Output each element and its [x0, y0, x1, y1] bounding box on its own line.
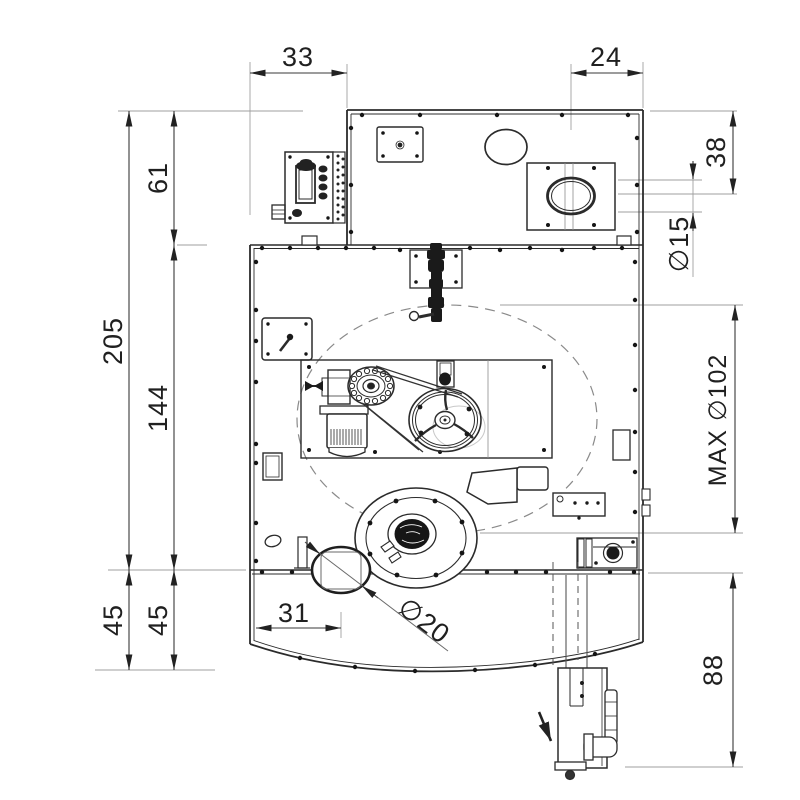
drive-wheel [409, 389, 485, 452]
panel-button [319, 184, 328, 191]
panel-button [319, 193, 328, 200]
dim-lower-height-outer: 45 [98, 604, 128, 636]
tension-bracket [437, 361, 454, 387]
panel-knob [292, 209, 302, 217]
dim-body-height: 144 [143, 384, 173, 432]
side-box-right [613, 430, 630, 460]
seam-tab-left [302, 236, 317, 245]
panel-button [319, 166, 328, 173]
small-oval-port [264, 534, 282, 549]
dim-total-height: 205 [98, 317, 128, 365]
shaft-coupling [305, 381, 314, 391]
top-hole [485, 130, 527, 165]
dim-top-offset-right: 24 [590, 42, 622, 72]
inlet-valve [410, 243, 463, 322]
panel-connector [272, 205, 285, 219]
machine-top-view-drawing: 33 24 61 205 144 45 45 38 ∅15 MAX ∅102 3… [0, 0, 800, 800]
dim-top-offset-left: 33 [282, 42, 314, 72]
drive-motor [305, 370, 368, 457]
dim-drain-offset: 31 [278, 598, 310, 628]
dim-max-diameter: MAX ∅102 [704, 354, 732, 487]
overflow-pipe [605, 690, 617, 744]
dim-spout-offset: 38 [701, 136, 731, 168]
outlet-plate [527, 163, 615, 230]
panel-button [319, 175, 328, 182]
side-box-left [263, 453, 282, 480]
technical-drawing-page: 33 24 61 205 144 45 45 38 ∅15 MAX ∅102 3… [0, 0, 800, 800]
dimension-lines [129, 73, 735, 767]
discharge-chute [467, 467, 548, 504]
dim-upper-height: 61 [143, 162, 173, 194]
gear-pulley [348, 367, 394, 405]
terminal-plate [553, 493, 605, 520]
support-bar [294, 537, 310, 568]
dim-drain-depth: 88 [698, 654, 728, 686]
inspection-plate [377, 127, 423, 162]
hidden-tank-lines [553, 562, 587, 669]
dim-drain-diameter: ∅20 [392, 592, 455, 650]
control-panel [272, 152, 345, 223]
valve-lever-knob [410, 312, 419, 321]
drain-pump [577, 538, 637, 568]
dim-lower-height-inner: 45 [143, 604, 173, 636]
pressure-gauge [262, 318, 312, 360]
seam-tab-right [617, 236, 631, 245]
flange-hub [395, 519, 430, 549]
dim-spout-diameter: ∅15 [664, 216, 694, 273]
extension-lines [95, 62, 743, 767]
drum-flange [355, 488, 477, 588]
flow-arrow [539, 712, 551, 741]
drain-pipe-assembly [539, 668, 617, 780]
